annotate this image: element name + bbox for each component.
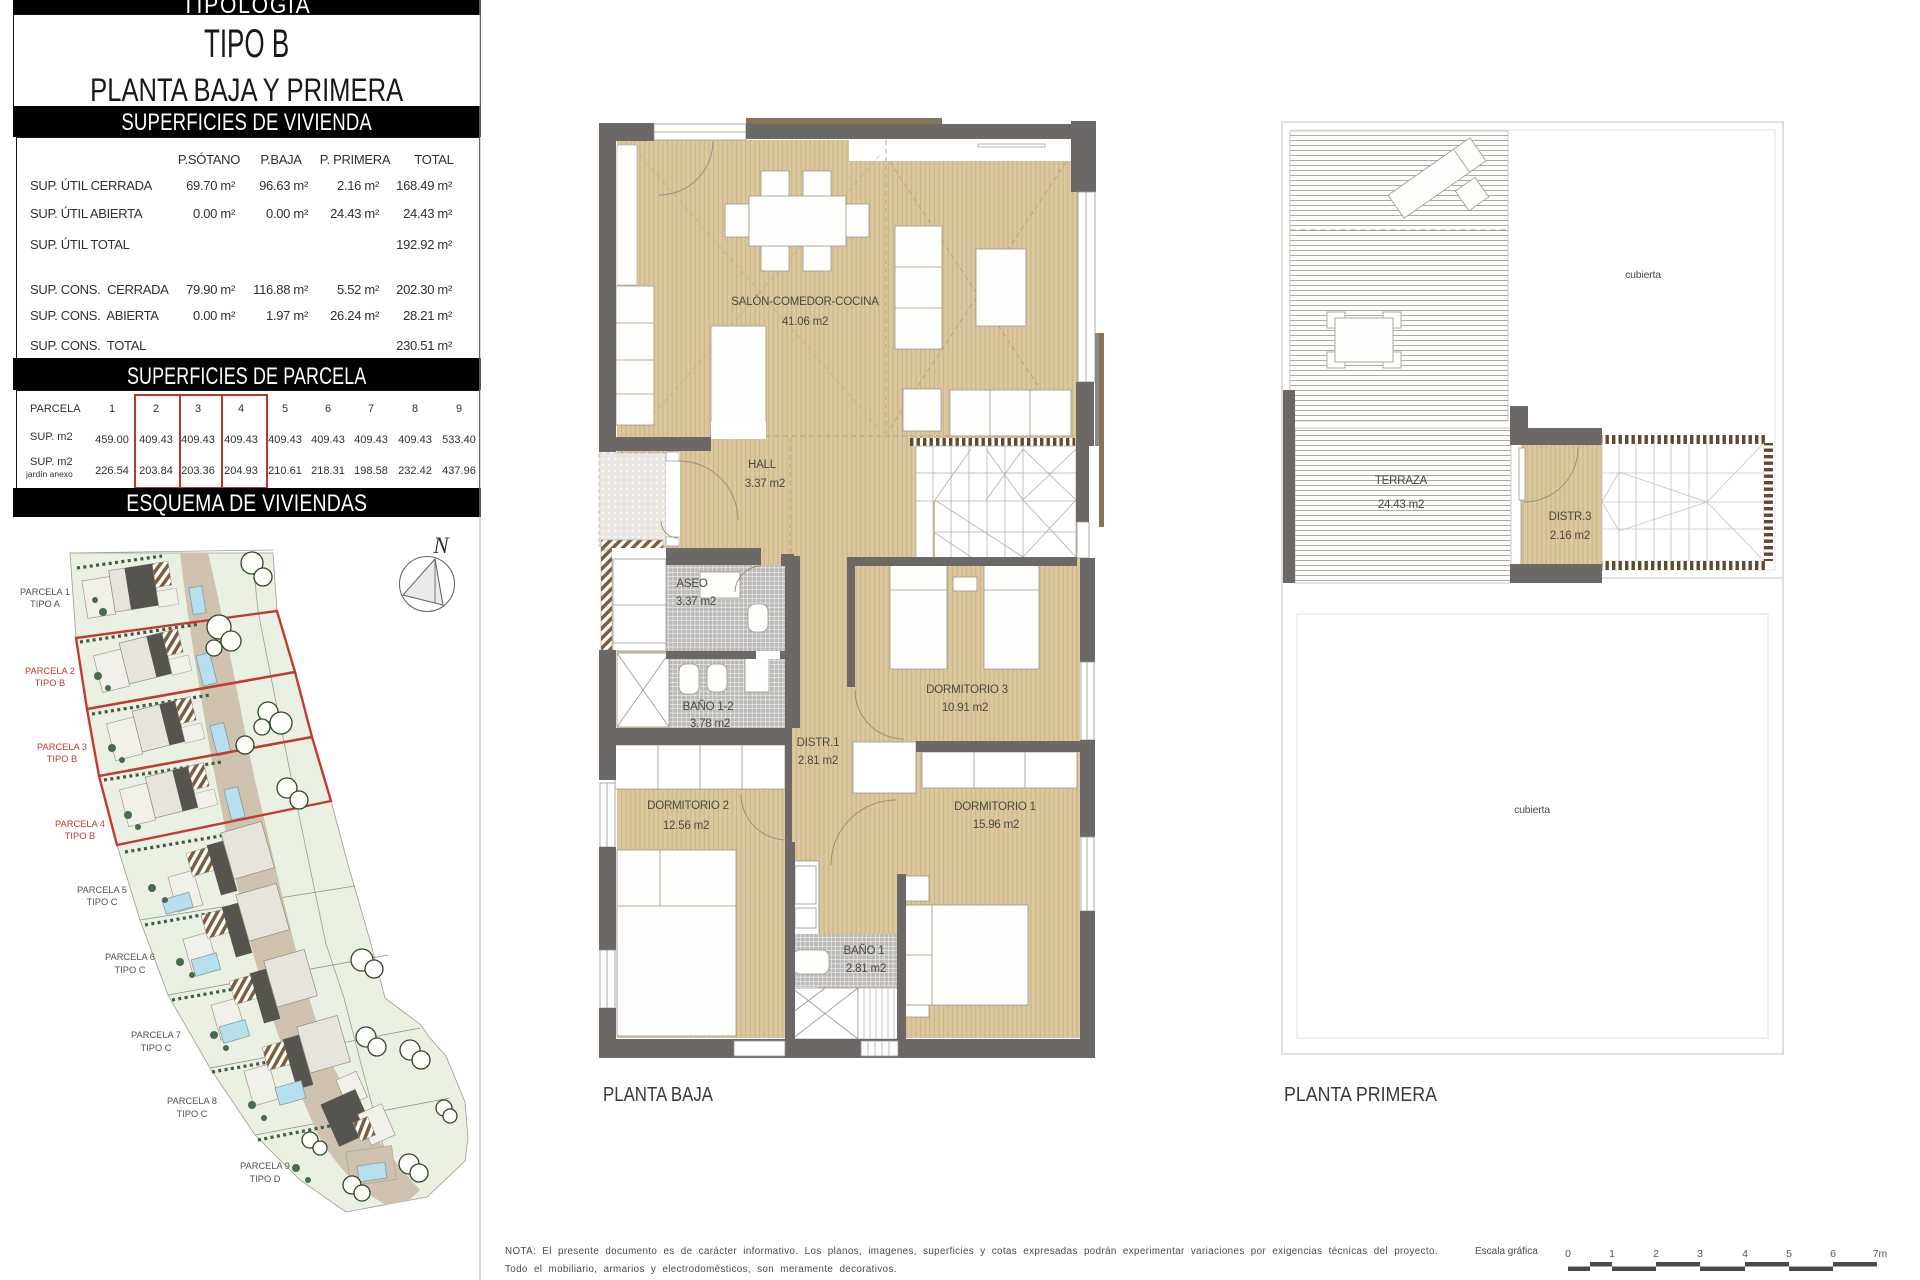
svg-text:24.43 m2: 24.43 m2 <box>1378 499 1424 511</box>
svg-text:PARCELA 2: PARCELA 2 <box>25 666 75 676</box>
svg-text:TIPO B: TIPO B <box>35 678 65 688</box>
svg-text:cubierta: cubierta <box>1514 804 1550 816</box>
svg-text:TIPO D: TIPO D <box>250 1174 281 1184</box>
svg-text:2.16 m2: 2.16 m2 <box>1550 530 1590 542</box>
svg-text:3.37 m2: 3.37 m2 <box>676 596 716 608</box>
svg-text:PARCELA 8: PARCELA 8 <box>167 1096 217 1106</box>
svg-text:5: 5 <box>1786 1248 1792 1260</box>
svg-text:N: N <box>432 533 450 558</box>
svg-text:2: 2 <box>1653 1248 1659 1260</box>
svg-text:1: 1 <box>1609 1248 1615 1260</box>
svg-text:PARCELA 5: PARCELA 5 <box>77 885 127 895</box>
svg-text:PARCELA 3: PARCELA 3 <box>37 742 87 752</box>
svg-text:41.06 m2: 41.06 m2 <box>782 316 828 328</box>
svg-text:TIPO B: TIPO B <box>65 831 95 841</box>
svg-text:10.91 m2: 10.91 m2 <box>942 702 988 714</box>
svg-text:DISTR.1: DISTR.1 <box>797 737 840 749</box>
svg-text:3.78 m2: 3.78 m2 <box>690 718 730 730</box>
svg-text:PLANTA BAJA: PLANTA BAJA <box>603 1083 713 1106</box>
svg-text:PARCELA 6: PARCELA 6 <box>105 952 155 962</box>
svg-text:7m: 7m <box>1873 1248 1888 1260</box>
svg-text:4: 4 <box>1742 1248 1748 1260</box>
svg-text:SALÓN-COMEDOR-COCINA: SALÓN-COMEDOR-COCINA <box>731 295 879 308</box>
svg-text:PARCELA 4: PARCELA 4 <box>55 819 105 829</box>
svg-text:3: 3 <box>1697 1248 1703 1260</box>
svg-text:BAÑO 1: BAÑO 1 <box>844 944 885 957</box>
svg-text:BAÑO 1-2: BAÑO 1-2 <box>683 700 734 713</box>
svg-text:TIPO A: TIPO A <box>30 599 61 609</box>
svg-text:DISTR.3: DISTR.3 <box>1549 511 1592 523</box>
svg-text:2.81 m2: 2.81 m2 <box>798 755 838 767</box>
svg-text:2.81 m2: 2.81 m2 <box>846 963 886 975</box>
svg-text:12.56 m2: 12.56 m2 <box>663 820 709 832</box>
svg-text:PLANTA PRIMERA: PLANTA PRIMERA <box>1284 1083 1437 1106</box>
svg-text:cubierta: cubierta <box>1625 269 1661 281</box>
svg-text:PARCELA 1: PARCELA 1 <box>20 587 70 597</box>
svg-text:15.96 m2: 15.96 m2 <box>973 819 1019 831</box>
svg-text:TIPO C: TIPO C <box>87 897 118 907</box>
svg-text:3.37 m2: 3.37 m2 <box>745 478 785 490</box>
svg-text:ASEO: ASEO <box>676 578 707 590</box>
svg-text:6: 6 <box>1830 1248 1836 1260</box>
svg-text:DORMITORIO 1: DORMITORIO 1 <box>954 801 1036 813</box>
svg-text:PARCELA 7: PARCELA 7 <box>131 1030 181 1040</box>
svg-text:TERRAZA: TERRAZA <box>1375 475 1428 487</box>
svg-text:HALL: HALL <box>748 459 777 471</box>
svg-text:TIPO C: TIPO C <box>177 1109 208 1119</box>
svg-text:PARCELA 9: PARCELA 9 <box>240 1161 290 1171</box>
svg-text:TIPO B: TIPO B <box>47 754 77 764</box>
svg-text:TIPO C: TIPO C <box>115 965 146 975</box>
svg-text:TIPO C: TIPO C <box>141 1043 172 1053</box>
svg-text:0: 0 <box>1565 1248 1571 1260</box>
svg-text:DORMITORIO 2: DORMITORIO 2 <box>647 800 729 812</box>
svg-text:DORMITORIO 3: DORMITORIO 3 <box>926 684 1008 696</box>
